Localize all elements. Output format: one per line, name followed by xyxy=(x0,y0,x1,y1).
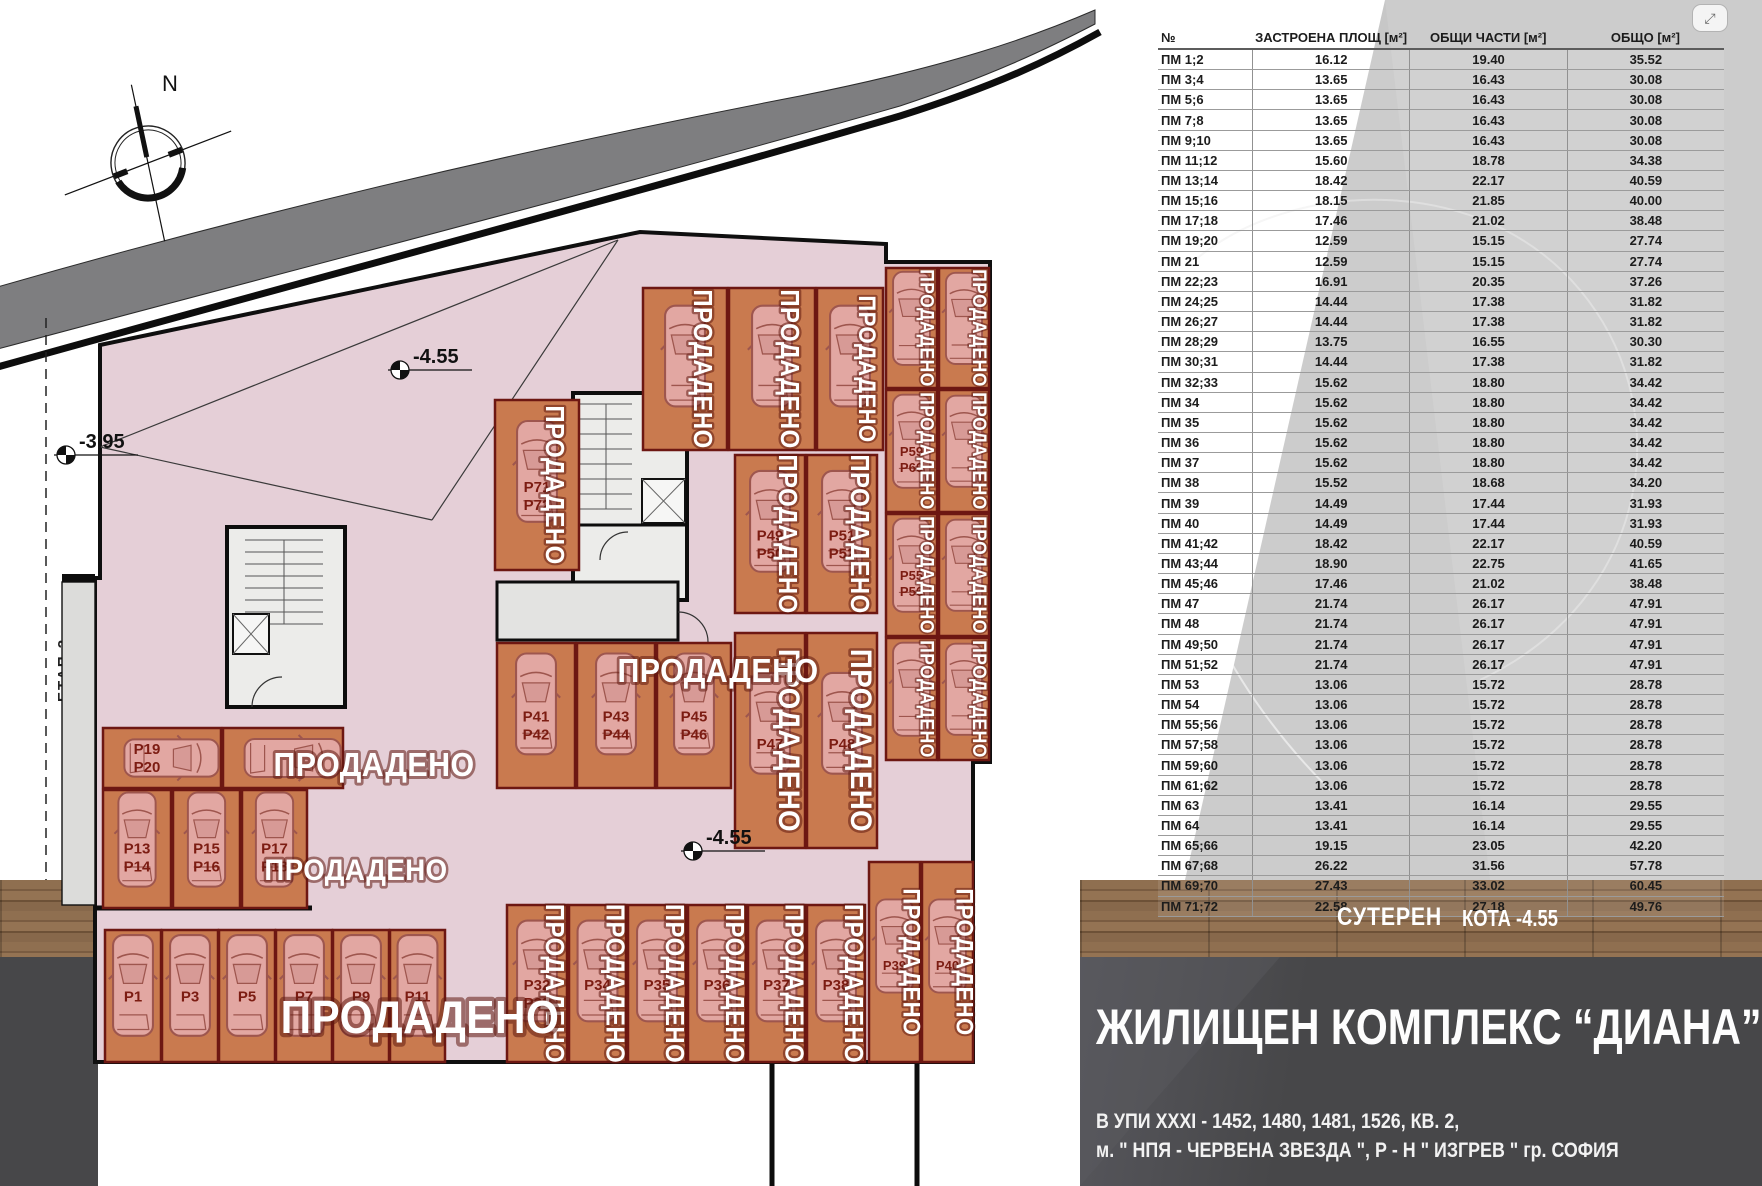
header-common-parts: ОБЩИ ЧАСТИ [м²] xyxy=(1410,30,1567,45)
car-icon xyxy=(280,935,328,1036)
stall-id: ПМ 30;31 xyxy=(1158,352,1252,371)
sold-label: ПРОДАДЕНО xyxy=(844,649,877,832)
area-value: 15.72 xyxy=(1409,776,1566,795)
sold-label: ПРОДАДЕНО xyxy=(775,289,804,448)
stall-outline xyxy=(162,930,218,1062)
car-icon xyxy=(245,735,341,781)
stall-number-label: P42 xyxy=(523,726,550,743)
stall-id: ПМ 51;52 xyxy=(1158,655,1252,674)
area-value: 28.78 xyxy=(1567,755,1724,774)
area-value: 15.62 xyxy=(1252,373,1409,392)
stall-number-label: P36 xyxy=(704,977,731,994)
car-icon xyxy=(124,735,218,780)
stall-id: ПМ 71;72 xyxy=(1158,897,1252,916)
marker-quadrants xyxy=(391,361,409,379)
stall-number-label: P41 xyxy=(523,708,550,725)
area-value: 16.14 xyxy=(1409,796,1566,815)
stall-id: ПМ 21 xyxy=(1158,252,1252,271)
stall-number-label: P19 xyxy=(134,741,161,758)
car-icon xyxy=(337,935,385,1036)
parking-stall: ПРОДАДЕНО xyxy=(939,514,991,636)
parking-stall: P43P44 xyxy=(577,643,655,788)
stall-number-label: P60 xyxy=(900,460,923,475)
stall-id: ПМ 7;8 xyxy=(1158,110,1252,129)
area-value: 26.17 xyxy=(1409,614,1566,633)
stall-outline xyxy=(886,638,937,760)
area-value: 49.76 xyxy=(1567,897,1724,916)
area-value: 34.42 xyxy=(1567,393,1724,412)
elevation-label: КОТА -4.55 xyxy=(1462,905,1582,932)
stall-number-label: P50 xyxy=(757,545,784,562)
stall-outline xyxy=(173,790,240,908)
stall-id: ПМ 43;44 xyxy=(1158,554,1252,573)
area-value: 21.02 xyxy=(1409,574,1566,593)
stall-outline xyxy=(103,728,221,788)
area-value: 17.46 xyxy=(1252,211,1409,230)
stall-id: ПМ 36 xyxy=(1158,433,1252,452)
stall-number-label: P13 xyxy=(124,841,151,858)
table-row: ПМ 32;3315.6218.8034.42 xyxy=(1158,373,1724,393)
stall-id: ПМ 63 xyxy=(1158,796,1252,815)
stall-outline xyxy=(922,862,973,1062)
sold-label: ПРОДАДЕНО xyxy=(600,904,629,1063)
sold-label: ПРОДАДЕНО xyxy=(688,289,717,448)
stall-id: ПМ 55;56 xyxy=(1158,715,1252,734)
sold-label: ПРОДАДЕНО xyxy=(281,992,560,1043)
elevation-value: -4.55 xyxy=(413,346,459,368)
sold-label: ПРОДАДЕНО xyxy=(839,904,868,1063)
stall-number-label: P48 xyxy=(829,736,856,753)
area-value: 13.65 xyxy=(1252,90,1409,109)
sold-label: ПРОДАДЕНО xyxy=(969,640,991,758)
parking-stall: ПРОДАДЕНО xyxy=(939,268,991,388)
car-icon xyxy=(889,395,934,488)
area-value: 34.42 xyxy=(1567,433,1724,452)
area-value: 31.82 xyxy=(1567,352,1724,371)
parking-stall: P47ПРОДАДЕНО xyxy=(735,633,805,848)
stall-number-label: P33 xyxy=(524,995,551,1012)
area-value: 15.62 xyxy=(1252,433,1409,452)
expand-button[interactable]: ⤢ xyxy=(1692,4,1728,32)
north-label: N xyxy=(162,71,178,96)
header-built-area: ЗАСТРОЕНА ПЛОЩ [м²] xyxy=(1253,30,1410,45)
table-row: ПМ 3615.6218.8034.42 xyxy=(1158,433,1724,453)
table-row: ПМ 17;1817.4621.0238.48 xyxy=(1158,211,1724,231)
elevation-marker: -4.55 xyxy=(681,827,765,860)
car-icon xyxy=(252,793,297,887)
stall-number-label: P44 xyxy=(603,726,630,743)
area-value: 13.06 xyxy=(1252,675,1409,694)
elevation-value: -4.55 xyxy=(706,827,752,849)
table-row: ПМ 57;5813.0615.7228.78 xyxy=(1158,735,1724,755)
car-icon xyxy=(393,935,441,1036)
sold-label: ПРОДАДЕНО xyxy=(916,640,938,758)
table-row: ПМ 13;1418.4222.1740.59 xyxy=(1158,171,1724,191)
complex-title: ЖИЛИЩЕН КОМПЛЕКС “ДИАНА” xyxy=(1096,998,1762,1056)
stall-outline xyxy=(807,633,877,848)
stall-outline xyxy=(569,905,626,1062)
table-row: ПМ 26;2714.4417.3831.82 xyxy=(1158,312,1724,332)
stall-number-label: P17 xyxy=(261,841,288,858)
area-value: 18.68 xyxy=(1409,473,1566,492)
area-value: 33.02 xyxy=(1409,876,1566,895)
elevator-center xyxy=(642,479,685,523)
car-icon xyxy=(693,921,741,1022)
parking-stall: P13P14 xyxy=(103,790,171,908)
area-value: 13.65 xyxy=(1252,131,1409,150)
stall-number-label: P40 xyxy=(936,958,959,973)
stall-id: ПМ 45;46 xyxy=(1158,574,1252,593)
stall-outline xyxy=(886,390,937,512)
area-value: 18.90 xyxy=(1252,554,1409,573)
parking-stall: P9 xyxy=(333,930,389,1062)
table-row: ПМ 5313.0615.7228.78 xyxy=(1158,675,1724,695)
stall-outline xyxy=(390,930,445,1062)
area-value: 14.49 xyxy=(1252,514,1409,533)
area-value: 60.45 xyxy=(1567,876,1724,895)
table-row: ПМ 4821.7426.1747.91 xyxy=(1158,614,1724,634)
car-icon xyxy=(661,306,709,407)
table-row: ПМ 30;3114.4417.3831.82 xyxy=(1158,352,1724,372)
sold-label: ПРОДАДЕНО xyxy=(916,516,938,634)
car-icon xyxy=(746,471,794,572)
car-icon xyxy=(942,520,986,611)
area-value: 15.62 xyxy=(1252,453,1409,472)
stall-id: ПМ 61;62 xyxy=(1158,776,1252,795)
parking-stall: P5 xyxy=(219,930,275,1062)
area-value: 30.08 xyxy=(1567,70,1724,89)
stall-outline xyxy=(497,643,575,788)
stairwell-left xyxy=(227,527,345,707)
parking-stall: ПРОДАДЕНО xyxy=(729,288,815,450)
stall-number-label: P52 xyxy=(829,545,856,562)
table-row: ПМ 51;5221.7426.1747.91 xyxy=(1158,655,1724,675)
parking-stall: P49P50ПРОДАДЕНО xyxy=(735,454,805,613)
sold-label: ПРОДАДЕНО xyxy=(951,888,978,1035)
stall-outline xyxy=(333,930,389,1062)
elevation-value: -3.95 xyxy=(79,431,125,453)
parking-stall: ПРОДАДЕНО xyxy=(939,390,991,512)
stall-outline xyxy=(939,268,989,388)
table-row: ПМ 5;613.6516.4330.08 xyxy=(1158,90,1724,110)
area-value: 20.35 xyxy=(1409,272,1566,291)
retaining-wall-line xyxy=(0,32,1100,368)
area-value: 22.75 xyxy=(1409,554,1566,573)
car-icon xyxy=(184,793,229,887)
table-row: ПМ 2112.5915.1527.74 xyxy=(1158,252,1724,272)
stairwell-center xyxy=(573,393,687,600)
stall-outline xyxy=(577,643,655,788)
stall-id: ПМ 26;27 xyxy=(1158,312,1252,331)
stall-outline xyxy=(223,728,343,788)
car-icon xyxy=(812,921,860,1022)
stall-number-label: P32 xyxy=(524,977,551,994)
car-icon xyxy=(748,306,796,407)
area-value: 13.41 xyxy=(1252,816,1409,835)
area-value: 30.08 xyxy=(1567,90,1724,109)
area-value: 16.91 xyxy=(1252,272,1409,291)
area-value: 27.43 xyxy=(1252,876,1409,895)
stall-number-label: P34 xyxy=(584,977,611,994)
table-row: ПМ 24;2514.4417.3831.82 xyxy=(1158,292,1724,312)
stall-outline xyxy=(735,633,805,848)
stall-id: ПМ 35 xyxy=(1158,413,1252,432)
stall-id: ПМ 48 xyxy=(1158,614,1252,633)
area-value: 47.91 xyxy=(1567,635,1724,654)
expand-icon: ⤢ xyxy=(1704,10,1715,27)
area-value: 14.44 xyxy=(1252,312,1409,331)
stall-number-label: P7 xyxy=(295,988,313,1005)
wood-band-left xyxy=(0,880,98,957)
table-row: ПМ 4014.4917.4431.93 xyxy=(1158,514,1724,534)
stall-id: ПМ 37 xyxy=(1158,453,1252,472)
stall-number-label: P14 xyxy=(124,859,151,876)
parking-stall: P48ПРОДАДЕНО xyxy=(807,633,877,848)
area-value: 30.30 xyxy=(1567,332,1724,351)
parking-stall: ПРОДАДЕНО xyxy=(886,268,938,388)
area-value: 14.44 xyxy=(1252,352,1409,371)
parking-stalls-layer: P71P72ПРОДАДЕНОПРОДАДЕНОПРОДАДЕНОПРОДАДЕ… xyxy=(103,268,991,1063)
stall-id: ПМ 24;25 xyxy=(1158,292,1252,311)
parking-stall: ПРОДАДЕНО xyxy=(643,288,727,450)
stall-id: ПМ 39 xyxy=(1158,493,1252,512)
area-value: 21.02 xyxy=(1409,211,1566,230)
marker-quadrants xyxy=(57,446,75,464)
area-value: 34.42 xyxy=(1567,453,1724,472)
car-icon xyxy=(109,935,157,1036)
elevation-markers-layer: -3.95-4.55-4.55 xyxy=(54,346,765,860)
stall-outline xyxy=(103,790,171,908)
area-value: 16.43 xyxy=(1409,131,1566,150)
stall-outline xyxy=(507,905,567,1062)
table-row: ПМ 3415.6218.8034.42 xyxy=(1158,393,1724,413)
elevator-left xyxy=(233,614,269,654)
area-value: 17.44 xyxy=(1409,514,1566,533)
parking-stall: P39ПРОДАДЕНО xyxy=(869,862,925,1062)
area-value: 26.22 xyxy=(1252,856,1409,875)
stall-outline xyxy=(817,288,883,450)
area-value: 15.72 xyxy=(1409,755,1566,774)
stall-outline xyxy=(729,288,815,450)
area-value: 34.20 xyxy=(1567,473,1724,492)
marker-quadrants xyxy=(684,842,702,860)
level-label: СУТЕРЕН xyxy=(1337,903,1461,932)
sold-label: ПРОДАДЕНО xyxy=(617,652,818,689)
area-value: 21.74 xyxy=(1252,614,1409,633)
table-row: ПМ 9;1013.6516.4330.08 xyxy=(1158,131,1724,151)
car-icon xyxy=(573,921,621,1022)
parking-stall: P3 xyxy=(162,930,218,1062)
area-value: 28.78 xyxy=(1567,695,1724,714)
car-icon xyxy=(114,793,159,887)
stall-id: ПМ 28;29 xyxy=(1158,332,1252,351)
parking-stall: P15P16 xyxy=(173,790,240,908)
area-value: 40.59 xyxy=(1567,171,1724,190)
area-value: 26.17 xyxy=(1409,635,1566,654)
area-value: 13.41 xyxy=(1252,796,1409,815)
area-value: 47.91 xyxy=(1567,655,1724,674)
parking-stall: P55P56ПРОДАДЕНО xyxy=(886,514,938,636)
area-value: 31.93 xyxy=(1567,514,1724,533)
stall-outline xyxy=(886,268,937,388)
dark-band-left xyxy=(0,957,98,1186)
table-row: ПМ 67;6826.2231.5657.78 xyxy=(1158,856,1724,876)
table-row: ПМ 3914.4917.4431.93 xyxy=(1158,493,1724,513)
area-value: 19.40 xyxy=(1409,50,1566,69)
car-icon xyxy=(818,673,866,774)
area-table-body: ПМ 1;216.1219.4035.52ПМ 3;413.6516.4330.… xyxy=(1158,50,1724,917)
car-icon xyxy=(513,921,561,1022)
area-value: 16.43 xyxy=(1409,110,1566,129)
area-value: 23.05 xyxy=(1409,836,1566,855)
sold-label: ПРОДАДЕНО xyxy=(969,516,991,634)
area-value: 14.44 xyxy=(1252,292,1409,311)
table-row: ПМ 28;2913.7516.5530.30 xyxy=(1158,332,1724,352)
sold-label: ПРОДАДЕНО xyxy=(779,904,808,1063)
area-value: 22.17 xyxy=(1409,171,1566,190)
table-row: ПМ 6313.4116.1429.55 xyxy=(1158,796,1724,816)
north-compass-icon: N xyxy=(45,66,250,259)
stall-id: ПМ 40 xyxy=(1158,514,1252,533)
car-icon xyxy=(746,673,794,774)
stall-id: ПМ 34 xyxy=(1158,393,1252,412)
car-icon xyxy=(942,396,986,487)
car-icon xyxy=(513,421,561,522)
stall-outline xyxy=(939,390,989,512)
parking-stall: P41P42 xyxy=(497,643,575,788)
area-value: 16.43 xyxy=(1409,90,1566,109)
marker-circle xyxy=(57,446,75,464)
area-value: 34.42 xyxy=(1567,413,1724,432)
area-value: 17.38 xyxy=(1409,352,1566,371)
stall-number-label: P15 xyxy=(193,841,220,858)
stall-number-label: P9 xyxy=(352,988,370,1005)
area-value: 21.85 xyxy=(1409,191,1566,210)
stall-number-label: P38 xyxy=(823,977,850,994)
parking-stall: P34ПРОДАДЕНО xyxy=(569,904,629,1063)
marker-circle xyxy=(684,842,702,860)
ramp-lines xyxy=(100,240,618,520)
area-value: 21.74 xyxy=(1252,635,1409,654)
stall-outline xyxy=(886,514,937,636)
area-value: 17.38 xyxy=(1409,292,1566,311)
table-row: ПМ 3815.5218.6834.20 xyxy=(1158,473,1724,493)
stall-number-label: P11 xyxy=(405,988,431,1005)
stall-outline xyxy=(807,455,877,613)
parking-stall: P45P46 xyxy=(657,643,731,788)
area-table: № ЗАСТРОЕНА ПЛОЩ [м²] ОБЩИ ЧАСТИ [м²] ОБ… xyxy=(1158,26,1724,917)
area-value: 16.12 xyxy=(1252,50,1409,69)
area-value: 19.15 xyxy=(1252,836,1409,855)
parking-stall: P32P33ПРОДАДЕНО xyxy=(507,904,569,1063)
stage-label: ЕТАП 2 xyxy=(55,638,72,702)
area-value: 13.65 xyxy=(1252,110,1409,129)
parking-stall: P51P52ПРОДАДЕНО xyxy=(807,454,877,613)
car-icon xyxy=(942,273,986,364)
area-value: 28.78 xyxy=(1567,715,1724,734)
area-value: 18.80 xyxy=(1409,413,1566,432)
table-row: ПМ 61;6213.0615.7228.78 xyxy=(1158,776,1724,796)
stall-outline xyxy=(219,930,275,1062)
address-line-2: м. " НПЯ - ЧЕРВЕНА ЗВЕЗДА ", Р - Н " ИЗГ… xyxy=(1096,1139,1711,1163)
sold-label: ПРОДАДЕНО xyxy=(854,295,881,442)
table-row: ПМ 1;216.1219.4035.52 xyxy=(1158,50,1724,70)
stall-id: ПМ 41;42 xyxy=(1158,534,1252,553)
stall-id: ПМ 47 xyxy=(1158,594,1252,613)
table-row: ПМ 6413.4116.1429.55 xyxy=(1158,816,1724,836)
area-value: 18.78 xyxy=(1409,151,1566,170)
area-value: 31.82 xyxy=(1567,312,1724,331)
table-row: ПМ 15;1618.1521.8540.00 xyxy=(1158,191,1724,211)
stall-id: ПМ 69;70 xyxy=(1158,876,1252,895)
car-icon xyxy=(889,643,934,736)
stall-number-label: P47 xyxy=(757,736,784,753)
stall-number-label: P56 xyxy=(900,584,923,599)
area-value: 15.72 xyxy=(1409,715,1566,734)
stall-outline xyxy=(242,790,307,908)
road-band xyxy=(0,10,1100,368)
parking-stall: ПРОДАДЕНО xyxy=(817,288,883,450)
area-value: 34.38 xyxy=(1567,151,1724,170)
storage-room xyxy=(497,582,708,642)
table-row: ПМ 69;7027.4333.0260.45 xyxy=(1158,876,1724,896)
header-number: № xyxy=(1158,30,1253,45)
stall-id: ПМ 9;10 xyxy=(1158,131,1252,150)
area-value: 17.38 xyxy=(1409,312,1566,331)
stall-id: ПМ 19;20 xyxy=(1158,231,1252,250)
stall-id: ПМ 15;16 xyxy=(1158,191,1252,210)
sold-label: ПРОДАДЕНО xyxy=(916,392,938,510)
table-row: ПМ 65;6619.1523.0542.20 xyxy=(1158,836,1724,856)
car-icon xyxy=(633,921,681,1022)
area-value: 29.55 xyxy=(1567,796,1724,815)
stall-number-label: P3 xyxy=(181,988,199,1005)
stall-outline xyxy=(643,288,727,450)
car-icon xyxy=(512,654,560,755)
car-icon xyxy=(592,654,640,755)
parking-stall: P11 xyxy=(390,930,445,1062)
sold-banners-layer: ПРОДАДЕНОПРОДАДЕНОПРОДАДЕНОПРОДАДЕНО xyxy=(264,652,818,1044)
sold-label: ПРОДАДЕНО xyxy=(720,904,749,1063)
stall-outline xyxy=(939,514,989,636)
stall-outline xyxy=(939,638,989,760)
area-value: 21.74 xyxy=(1252,594,1409,613)
sold-label: ПРОДАДЕНО xyxy=(845,454,874,613)
area-value: 35.52 xyxy=(1567,50,1724,69)
car-icon xyxy=(889,519,934,612)
interior-walls xyxy=(95,908,917,1186)
area-value: 18.80 xyxy=(1409,453,1566,472)
stall-number-label: P59 xyxy=(900,444,923,459)
car-icon xyxy=(925,899,970,992)
area-value: 12.59 xyxy=(1252,252,1409,271)
area-value: 47.91 xyxy=(1567,594,1724,613)
parking-stall: P71P72ПРОДАДЕНО xyxy=(495,400,579,570)
stall-number-label: P20 xyxy=(134,759,161,776)
basement-slab xyxy=(95,232,990,1062)
table-row: ПМ 3715.6218.8034.42 xyxy=(1158,453,1724,473)
sold-label: ПРОДАДЕНО xyxy=(660,904,689,1063)
area-value: 15.15 xyxy=(1409,231,1566,250)
stall-id: ПМ 59;60 xyxy=(1158,755,1252,774)
area-value: 16.55 xyxy=(1409,332,1566,351)
area-value: 21.74 xyxy=(1252,655,1409,674)
parking-stall: P37ПРОДАДЕНО xyxy=(748,904,808,1063)
area-value: 13.06 xyxy=(1252,755,1409,774)
sold-label: ПРОДАДЕНО xyxy=(898,888,925,1035)
table-row: ПМ 11;1215.6018.7834.38 xyxy=(1158,151,1724,171)
parking-stall: P38ПРОДАДЕНО xyxy=(807,904,868,1063)
